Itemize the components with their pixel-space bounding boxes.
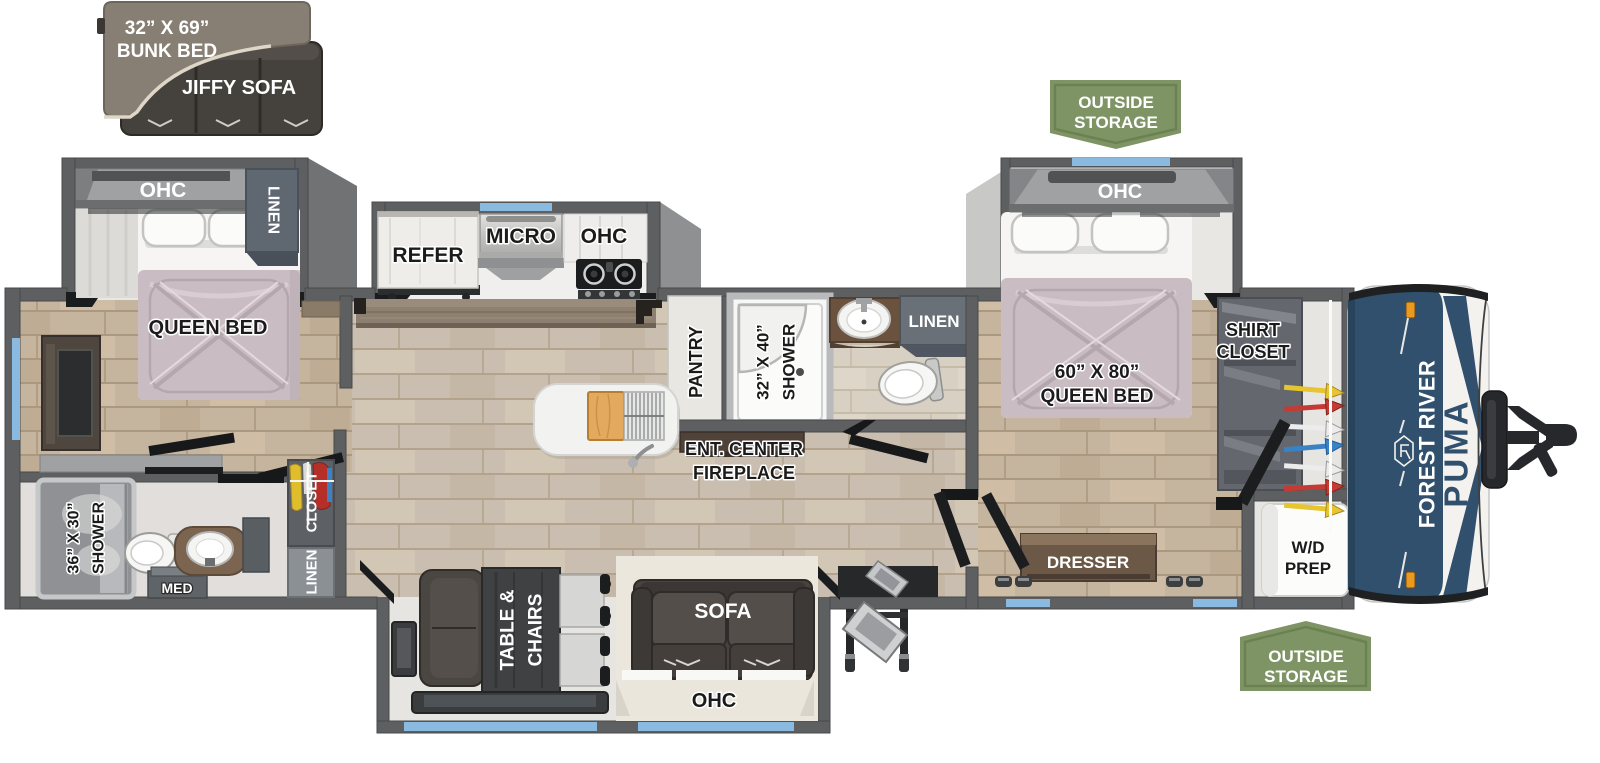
svg-text:TABLE &: TABLE & <box>498 589 519 670</box>
svg-text:CHAIRS: CHAIRS <box>526 594 547 667</box>
svg-text:60” X 80”: 60” X 80” <box>1055 362 1140 383</box>
svg-text:PUMA: PUMA <box>1438 398 1475 507</box>
svg-text:FOREST RIVER: FOREST RIVER <box>1415 360 1440 529</box>
svg-text:36” X 30”: 36” X 30” <box>66 502 83 573</box>
svg-text:SHOWER: SHOWER <box>780 324 799 401</box>
svg-text:OHC: OHC <box>140 179 187 202</box>
svg-text:LINEN: LINEN <box>265 186 282 234</box>
svg-text:ENT. CENTER: ENT. CENTER <box>685 439 803 459</box>
svg-text:LINEN: LINEN <box>304 550 321 595</box>
svg-text:32” X 40”: 32” X 40” <box>754 324 773 400</box>
svg-text:CLOSET: CLOSET <box>1216 342 1289 362</box>
svg-text:LINEN: LINEN <box>909 312 960 331</box>
svg-text:SHIRT: SHIRT <box>1226 320 1280 340</box>
svg-text:PANTRY: PANTRY <box>686 326 706 398</box>
svg-text:OHC: OHC <box>692 690 736 712</box>
svg-text:BUNK BED: BUNK BED <box>117 41 217 62</box>
svg-text:OUTSIDE: OUTSIDE <box>1268 647 1344 666</box>
svg-text:OUTSIDE: OUTSIDE <box>1078 93 1154 112</box>
svg-text:QUEEN BED: QUEEN BED <box>149 317 268 339</box>
svg-text:REFER: REFER <box>392 244 463 267</box>
svg-text:SHOWER: SHOWER <box>91 502 108 574</box>
svg-text:OHC: OHC <box>1098 181 1142 203</box>
svg-text:SOFA: SOFA <box>694 600 751 623</box>
svg-text:QUEEN BED: QUEEN BED <box>1041 386 1154 407</box>
svg-text:32” X 69”: 32” X 69” <box>125 18 210 39</box>
svg-text:FIREPLACE: FIREPLACE <box>693 463 795 483</box>
svg-text:CLOSET: CLOSET <box>304 472 321 533</box>
svg-text:MICRO: MICRO <box>486 225 556 248</box>
svg-text:STORAGE: STORAGE <box>1074 113 1158 132</box>
svg-text:JIFFY SOFA: JIFFY SOFA <box>182 77 296 99</box>
svg-text:W/D: W/D <box>1291 538 1324 557</box>
svg-text:PREP: PREP <box>1285 559 1331 578</box>
svg-text:MED: MED <box>161 580 192 596</box>
svg-text:STORAGE: STORAGE <box>1264 667 1348 686</box>
svg-text:OHC: OHC <box>581 225 628 248</box>
svg-text:DRESSER: DRESSER <box>1047 553 1129 572</box>
